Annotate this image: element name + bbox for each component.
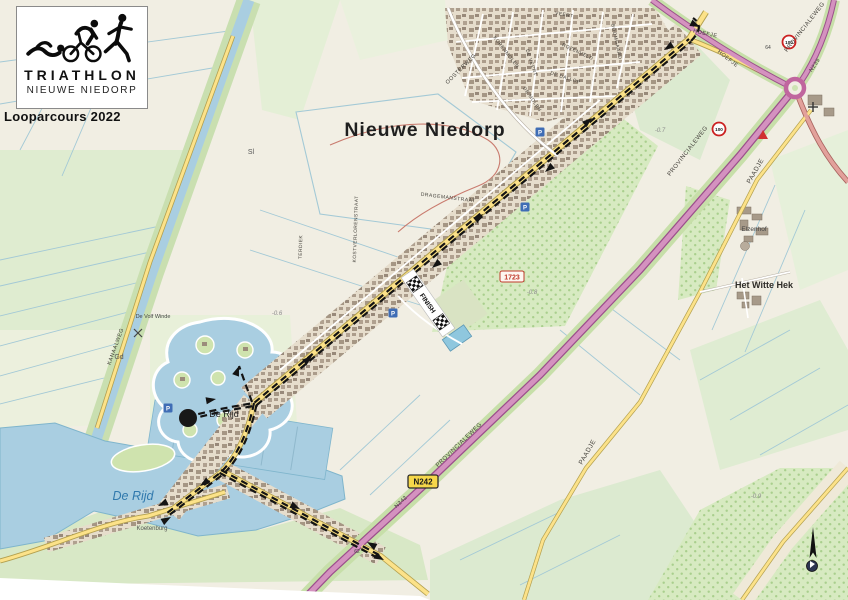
svg-text:N242: N242 (413, 478, 433, 487)
place-sl: Sl (248, 149, 255, 156)
harbor-label-de-rijd: De Rijd (209, 409, 239, 419)
map-sheet: FINISH P P P P N242 100 100 1723 (0, 0, 848, 600)
parking-icon: P (164, 404, 173, 413)
svg-text:-0.6: -0.6 (272, 311, 283, 317)
svg-text:P: P (391, 312, 395, 318)
event-logo: TRIATHLON NIEUWE NIEDORP (16, 6, 148, 109)
water-label-de-rijd: De Rijd (113, 489, 155, 503)
place-elzenhof: Elzenhof (741, 226, 766, 233)
svg-text:-0.7: -0.7 (655, 128, 666, 134)
svg-text:P: P (166, 407, 170, 413)
parking-icon: P (521, 203, 530, 212)
triathlon-swim-bike-run-icon (17, 11, 147, 68)
svg-text:-0.8: -0.8 (527, 290, 538, 296)
logo-subtitle: NIEUWE NIEDORP (17, 85, 147, 96)
svg-text:100: 100 (715, 127, 723, 132)
place-koetenburg: Koetenburg (136, 526, 167, 532)
street-terdiek: TERDIEK (298, 234, 305, 259)
town-label: Nieuwe Niedorp (344, 119, 505, 141)
parcel-1723-badge: 1723 (500, 271, 524, 282)
start-marker (179, 409, 197, 427)
svg-text:-0.9: -0.9 (751, 494, 762, 500)
place-de-volf-winde: De Volf Winde (136, 314, 171, 320)
number-62: 62 (354, 549, 360, 555)
place-het-witte-hek: Het Witte Hek (735, 280, 794, 290)
map-caption: Looparcours 2022 (4, 109, 164, 124)
parking-icon: P (536, 128, 545, 137)
logo-title: TRIATHLON (17, 68, 147, 83)
svg-text:P: P (538, 131, 542, 137)
n242-shield: N242 (408, 475, 438, 488)
svg-text:P: P (523, 206, 527, 212)
svg-text:1723: 1723 (504, 275, 520, 282)
number-64: 64 (765, 45, 771, 51)
parking-icon: P (389, 309, 398, 318)
speed-100-sign: 100 (713, 123, 726, 136)
